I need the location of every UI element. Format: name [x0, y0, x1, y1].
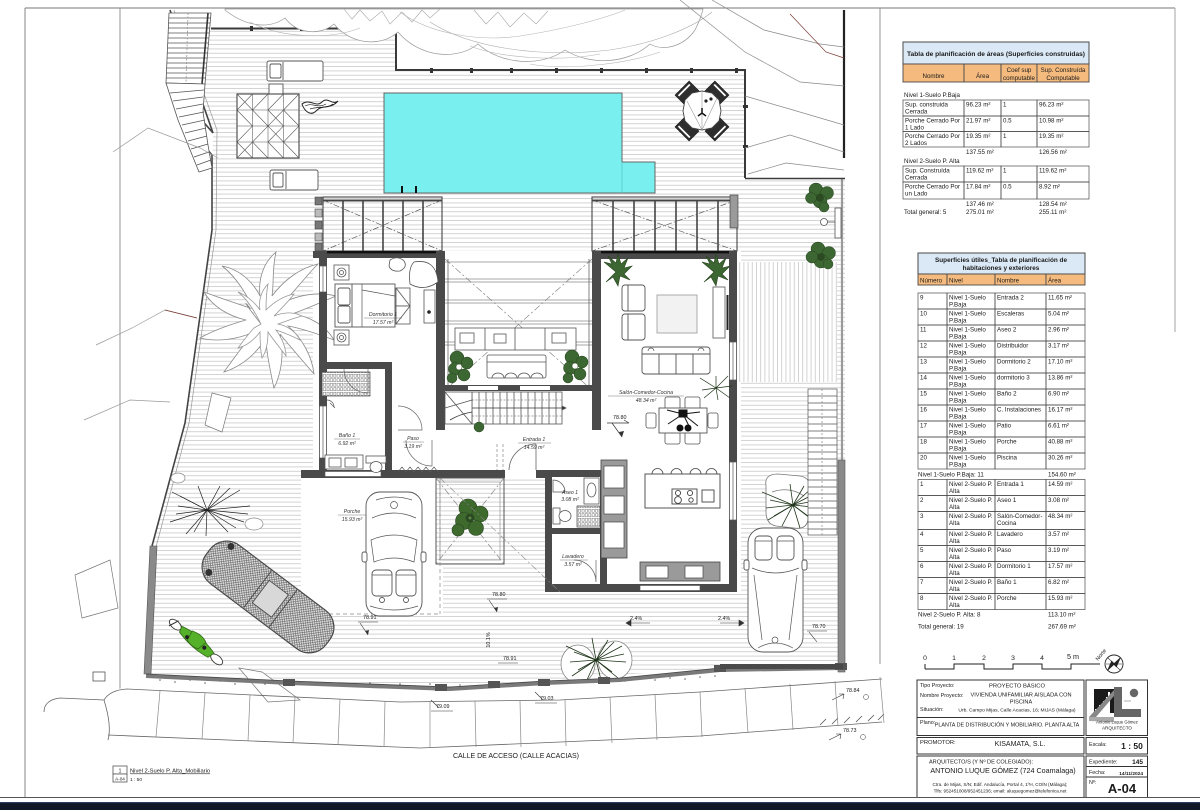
svg-text:P.Baja: P.Baja — [949, 382, 967, 389]
svg-text:3: 3 — [1011, 655, 1015, 662]
svg-text:Nivel 2-Suelo P.: Nivel 2-Suelo P. — [949, 513, 993, 520]
svg-text:3.08 m²: 3.08 m² — [1048, 497, 1069, 504]
svg-text:Escaleras: Escaleras — [997, 311, 1024, 318]
svg-text:48.34 m²: 48.34 m² — [1048, 513, 1072, 520]
svg-text:0.5: 0.5 — [1003, 184, 1012, 191]
svg-text:Nivel 1-Suelo: Nivel 1-Suelo — [949, 439, 986, 446]
svg-text:Patio: Patio — [997, 423, 1012, 430]
svg-text:Sup. Construída: Sup. Construída — [1041, 67, 1086, 74]
svg-text:un Lado: un Lado — [905, 191, 928, 198]
svg-text:Ctra. de Mijas, S/N; Edif. And: Ctra. de Mijas, S/N; Edif. Andalucía, Po… — [933, 781, 1068, 787]
svg-text:78.80: 78.80 — [492, 592, 506, 598]
svg-text:Paso: Paso — [997, 547, 1012, 554]
svg-text:1 : 50: 1 : 50 — [130, 777, 142, 783]
svg-text:Superficies útiles_Tabla de pl: Superficies útiles_Tabla de planificació… — [935, 257, 1067, 264]
svg-text:Total general: 5: Total general: 5 — [904, 209, 947, 216]
svg-text:154.60 m²: 154.60 m² — [1048, 472, 1076, 479]
svg-text:5 m: 5 m — [1067, 652, 1079, 661]
svg-text:Porche Cerrado Por: Porche Cerrado Por — [905, 133, 960, 140]
svg-text:Expediente:: Expediente: — [1089, 760, 1117, 766]
svg-text:2.4%: 2.4% — [630, 616, 642, 622]
svg-text:Distribuidor: Distribuidor — [997, 343, 1028, 350]
svg-text:1: 1 — [1003, 168, 1007, 175]
svg-text:126.56 m²: 126.56 m² — [1039, 149, 1067, 156]
svg-text:Nivel 1-Suelo: Nivel 1-Suelo — [949, 375, 986, 382]
svg-text:6.61 m²: 6.61 m² — [1048, 423, 1069, 430]
svg-text:1: 1 — [1003, 133, 1007, 140]
svg-text:ARQUITECTO: ARQUITECTO — [1102, 726, 1132, 731]
svg-text:Total general: 19: Total general: 19 — [918, 624, 964, 631]
svg-text:Alta: Alta — [949, 504, 960, 511]
svg-text:18: 18 — [920, 439, 927, 446]
svg-text:Dormitorio 1: Dormitorio 1 — [369, 312, 397, 318]
svg-text:15: 15 — [920, 391, 927, 398]
svg-text:Baño 2: Baño 2 — [997, 391, 1017, 398]
svg-text:3.08 m²: 3.08 m² — [561, 497, 579, 503]
svg-text:Porche: Porche — [997, 439, 1017, 446]
svg-text:19.35 m²: 19.35 m² — [1039, 133, 1063, 140]
svg-text:Alta: Alta — [949, 602, 960, 609]
svg-text:Número: Número — [920, 278, 943, 285]
svg-text:255.11 m²: 255.11 m² — [1039, 209, 1066, 216]
svg-text:119.62 m²: 119.62 m² — [966, 168, 993, 175]
svg-text:CALLE DE ACCESO (CALLE ACACIAS: CALLE DE ACCESO (CALLE ACACIAS) — [453, 753, 579, 760]
svg-text:Nivel 2-Suelo P.: Nivel 2-Suelo P. — [949, 547, 993, 554]
svg-text:dormitorio 3: dormitorio 3 — [997, 375, 1030, 382]
svg-text:PROMOTOR:: PROMOTOR: — [920, 740, 956, 746]
svg-text:11: 11 — [920, 327, 927, 334]
svg-text:20: 20 — [920, 455, 927, 462]
svg-text:Entrada 2: Entrada 2 — [997, 295, 1024, 302]
svg-text:Piscina: Piscina — [997, 455, 1018, 462]
svg-text:8: 8 — [920, 595, 924, 602]
svg-text:128.54 m²: 128.54 m² — [1039, 201, 1067, 208]
svg-text:KISAMATA, S.L.: KISAMATA, S.L. — [995, 741, 1046, 748]
svg-text:10: 10 — [920, 311, 927, 318]
svg-text:computable: computable — [1003, 75, 1036, 82]
svg-text:A-04: A-04 — [1108, 781, 1137, 796]
svg-text:Porche: Porche — [997, 595, 1017, 602]
svg-text:0: 0 — [923, 655, 927, 662]
svg-text:Aseo 2: Aseo 2 — [997, 327, 1017, 334]
svg-text:Nivel 2-Suelo P. Alta: 8: Nivel 2-Suelo P. Alta: 8 — [918, 612, 981, 619]
svg-text:Porche Cerrado Por: Porche Cerrado Por — [905, 184, 960, 191]
svg-text:Nivel 2-Suelo P.: Nivel 2-Suelo P. — [949, 481, 993, 488]
svg-text:267.69 m²: 267.69 m² — [1048, 624, 1076, 631]
svg-text:Nivel 1-Suelo P.Baja: Nivel 1-Suelo P.Baja — [904, 92, 961, 99]
svg-text:Tabla de planificación de área: Tabla de planificación de áreas (Superfi… — [907, 51, 1085, 58]
svg-text:6.90 m²: 6.90 m² — [1048, 391, 1069, 398]
svg-text:P.Baja: P.Baja — [949, 446, 967, 453]
svg-text:Área: Área — [1048, 278, 1062, 285]
svg-text:113.10 m²: 113.10 m² — [1048, 612, 1075, 619]
svg-text:Situación:: Situación: — [920, 707, 944, 713]
svg-text:17.57 m²: 17.57 m² — [373, 320, 394, 326]
svg-text:P.Baja: P.Baja — [949, 302, 967, 309]
svg-text:Nombre: Nombre — [922, 73, 945, 80]
svg-text:Nivel 2-Suelo P. Alta: Nivel 2-Suelo P. Alta — [904, 158, 960, 165]
svg-text:Salón-Comedor-: Salón-Comedor- — [997, 513, 1042, 520]
svg-text:Nivel 2-Suelo P. Alta_Mobiliar: Nivel 2-Suelo P. Alta_Mobiliario — [130, 769, 210, 775]
svg-text:Entrada 1: Entrada 1 — [997, 481, 1024, 488]
svg-text:Cocina: Cocina — [997, 520, 1017, 527]
svg-text:8.92 m²: 8.92 m² — [1039, 184, 1060, 191]
svg-text:4: 4 — [1040, 655, 1044, 662]
svg-text:Alta: Alta — [949, 488, 960, 495]
svg-text:Nivel 1-Suelo: Nivel 1-Suelo — [949, 423, 986, 430]
svg-text:119.62 m²: 119.62 m² — [1039, 168, 1066, 175]
svg-text:2: 2 — [920, 497, 924, 504]
svg-text:Nivel 1-Suelo: Nivel 1-Suelo — [949, 391, 986, 398]
svg-text:3.57 m²: 3.57 m² — [564, 562, 582, 568]
svg-text:P.Baja: P.Baja — [949, 462, 967, 469]
svg-text:1: 1 — [1003, 102, 1007, 109]
svg-text:15.93 m²: 15.93 m² — [342, 517, 363, 523]
svg-text:Plano:: Plano: — [920, 720, 935, 726]
svg-text:3.19 m²: 3.19 m² — [1048, 547, 1069, 554]
svg-text:Área: Área — [976, 73, 990, 80]
svg-text:Alta: Alta — [949, 554, 960, 561]
svg-text:13: 13 — [920, 359, 927, 366]
svg-text:10.98 m²: 10.98 m² — [1039, 118, 1063, 125]
svg-text:Nivel 2-Suelo P.: Nivel 2-Suelo P. — [949, 531, 993, 538]
svg-text:48.34 m²: 48.34 m² — [636, 398, 657, 404]
svg-text:Nivel 2-Suelo P.: Nivel 2-Suelo P. — [949, 563, 993, 570]
svg-text:3: 3 — [920, 513, 924, 520]
svg-text:17.57 m²: 17.57 m² — [1048, 563, 1072, 570]
svg-text:13.86 m²: 13.86 m² — [1048, 375, 1072, 382]
svg-text:Cerrada: Cerrada — [905, 175, 928, 182]
svg-text:14.59 m²: 14.59 m² — [1048, 481, 1072, 488]
svg-text:P.Baja: P.Baja — [949, 430, 967, 437]
svg-text:Nivel 1-Suelo: Nivel 1-Suelo — [949, 455, 986, 462]
svg-text:P.Baja: P.Baja — [949, 318, 967, 325]
svg-text:Escala:: Escala: — [1089, 742, 1107, 748]
svg-text:9: 9 — [920, 295, 924, 302]
svg-text:Nº:: Nº: — [1089, 780, 1096, 786]
svg-text:Alta: Alta — [949, 538, 960, 545]
svg-text:Coef sup: Coef sup — [1007, 67, 1032, 74]
svg-text:Dormitorio 2: Dormitorio 2 — [997, 359, 1031, 366]
svg-text:137.55 m²: 137.55 m² — [966, 149, 994, 156]
svg-text:ARQUITECTO/S (Y Nº DE COLEGIAD: ARQUITECTO/S (Y Nº DE COLEGIADO): — [929, 759, 1034, 766]
svg-text:Nivel 1-Suelo: Nivel 1-Suelo — [949, 359, 986, 366]
svg-text:Entrada 1: Entrada 1 — [523, 437, 546, 443]
svg-text:78.84: 78.84 — [846, 688, 860, 694]
svg-text:17.10 m²: 17.10 m² — [1048, 359, 1072, 366]
svg-text:Paso: Paso — [407, 436, 419, 442]
svg-text:96.23 m²: 96.23 m² — [1039, 102, 1063, 109]
svg-text:14: 14 — [920, 375, 927, 382]
svg-text:78.70: 78.70 — [812, 624, 826, 630]
svg-text:17.84 m²: 17.84 m² — [966, 184, 990, 191]
svg-text:P.Baja: P.Baja — [949, 366, 967, 373]
svg-text:78.91: 78.91 — [503, 656, 517, 662]
svg-text:Nivel: Nivel — [949, 278, 963, 285]
svg-text:1: 1 — [952, 655, 956, 662]
svg-text:1 Lado: 1 Lado — [905, 125, 924, 132]
svg-text:6.82 m²: 6.82 m² — [1048, 579, 1069, 586]
svg-text:A-04: A-04 — [115, 777, 125, 782]
svg-text:Nivel 1-Suelo: Nivel 1-Suelo — [949, 343, 986, 350]
svg-text:Baño 1: Baño 1 — [997, 579, 1017, 586]
svg-text:1 : 50: 1 : 50 — [1121, 741, 1143, 751]
svg-text:Computable: Computable — [1046, 75, 1080, 82]
svg-text:VIVIENDA UNIFAMILIAR AISLADA C: VIVIENDA UNIFAMILIAR AISLADA CON — [970, 693, 1071, 699]
svg-text:16: 16 — [920, 407, 927, 414]
svg-text:4: 4 — [920, 531, 924, 538]
svg-text:2: 2 — [982, 655, 986, 662]
svg-text:15.93 m²: 15.93 m² — [1048, 595, 1072, 602]
svg-text:11.65 m²: 11.65 m² — [1048, 295, 1072, 302]
svg-text:Lavadero: Lavadero — [562, 554, 584, 560]
svg-text:3.57 m²: 3.57 m² — [1048, 531, 1069, 538]
svg-text:C. Instalaciones: C. Instalaciones — [997, 407, 1041, 414]
svg-text:5: 5 — [920, 547, 924, 554]
svg-text:Alta: Alta — [949, 586, 960, 593]
svg-text:Urb. Campo Mijas, Calle Acacia: Urb. Campo Mijas, Calle Acacias, 16; MIJ… — [958, 708, 1076, 714]
svg-text:78.91: 78.91 — [363, 615, 377, 621]
svg-text:3.19 m²: 3.19 m² — [404, 444, 422, 450]
svg-text:Nivel 2-Suelo P.: Nivel 2-Suelo P. — [949, 595, 993, 602]
svg-text:P.Baja: P.Baja — [949, 398, 967, 405]
svg-text:14.59 m²: 14.59 m² — [524, 445, 545, 451]
svg-text:0.5: 0.5 — [1003, 118, 1012, 125]
svg-text:Sup. Construída: Sup. Construída — [905, 168, 950, 175]
svg-text:Aseo 1: Aseo 1 — [561, 490, 578, 496]
svg-text:5.04 m²: 5.04 m² — [1048, 311, 1069, 318]
svg-text:PISCINA: PISCINA — [1010, 700, 1033, 706]
svg-text:14/11/2024: 14/11/2024 — [1119, 771, 1143, 777]
svg-text:Nivel 1-Suelo: Nivel 1-Suelo — [949, 327, 986, 334]
svg-text:21.97 m²: 21.97 m² — [966, 118, 990, 125]
svg-text:Nivel 1-Suelo: Nivel 1-Suelo — [949, 311, 986, 318]
svg-text:12: 12 — [920, 343, 927, 350]
svg-text:Nombre: Nombre — [997, 278, 1020, 285]
svg-text:17: 17 — [920, 423, 927, 430]
svg-text:2.96 m²: 2.96 m² — [1048, 327, 1069, 334]
svg-text:Nivel 2-Suelo P.: Nivel 2-Suelo P. — [949, 579, 993, 586]
svg-text:Nivel 2-Suelo P.: Nivel 2-Suelo P. — [949, 497, 993, 504]
svg-text:1: 1 — [920, 481, 924, 488]
svg-text:Alta: Alta — [949, 570, 960, 577]
svg-text:2 Lados: 2 Lados — [905, 140, 927, 147]
svg-text:19.35 m²: 19.35 m² — [966, 133, 990, 140]
svg-text:PLANTA DE DISTRIBUCIÓN Y MOBIL: PLANTA DE DISTRIBUCIÓN Y MOBILIARIO. PLA… — [935, 722, 1080, 729]
svg-text:Fecha:: Fecha: — [1089, 770, 1105, 776]
svg-text:78.73: 78.73 — [843, 728, 857, 734]
svg-text:6.92 m²: 6.92 m² — [338, 441, 356, 447]
svg-text:275.01 m²: 275.01 m² — [966, 209, 994, 216]
svg-text:P.Baja: P.Baja — [949, 334, 967, 341]
svg-text:10.1%: 10.1% — [486, 632, 492, 647]
svg-text:Nivel 1-Suelo: Nivel 1-Suelo — [949, 295, 986, 302]
svg-text:Antonio Luque Gómez: Antonio Luque Gómez — [1096, 720, 1138, 725]
svg-text:Nivel 1-Suelo P.Baja: 11: Nivel 1-Suelo P.Baja: 11 — [918, 472, 984, 479]
svg-text:96.23 m²: 96.23 m² — [966, 102, 990, 109]
svg-text:Cerrada: Cerrada — [905, 109, 928, 116]
svg-text:Porche Cerrado Por: Porche Cerrado Por — [905, 118, 960, 125]
svg-text:137.46 m²: 137.46 m² — [966, 201, 994, 208]
svg-text:2.4%: 2.4% — [718, 616, 730, 622]
svg-text:Porche: Porche — [344, 509, 361, 515]
svg-text:P.Baja: P.Baja — [949, 350, 967, 357]
svg-text:Tlfs: 952451008/952451236; ema: Tlfs: 952451008/952451236; email: aluque… — [934, 789, 1068, 794]
svg-text:Nivel 1-Suelo: Nivel 1-Suelo — [949, 407, 986, 414]
svg-text:6: 6 — [920, 563, 924, 570]
svg-text:7: 7 — [920, 579, 924, 586]
svg-text:Aseo 1: Aseo 1 — [997, 497, 1017, 504]
svg-text:3.17 m²: 3.17 m² — [1048, 343, 1069, 350]
svg-text:1: 1 — [119, 769, 122, 775]
svg-text:Tipo Proyecto:: Tipo Proyecto: — [920, 683, 955, 689]
svg-text:Dormitorio 1: Dormitorio 1 — [997, 563, 1031, 570]
svg-text:P.Baja: P.Baja — [949, 414, 967, 421]
svg-text:145: 145 — [1132, 759, 1143, 766]
svg-text:Nombre Proyecto:: Nombre Proyecto: — [920, 693, 963, 699]
svg-text:habitaciones y exteriores: habitaciones y exteriores — [963, 265, 1040, 272]
svg-text:Salón-Comedor-Cocina: Salón-Comedor-Cocina — [619, 390, 673, 396]
svg-text:Alta: Alta — [949, 520, 960, 527]
svg-text:Baño 1: Baño 1 — [339, 433, 356, 439]
svg-text:PROYECTO BÁSICO: PROYECTO BÁSICO — [989, 683, 1045, 690]
svg-text:Sup. construida: Sup. construida — [905, 102, 949, 109]
svg-text:16.17 m²: 16.17 m² — [1048, 407, 1072, 414]
svg-text:30.26 m²: 30.26 m² — [1048, 455, 1072, 462]
svg-text:ANTONIO LUQUE GÓMEZ (724 Coama: ANTONIO LUQUE GÓMEZ (724 Coamalaga) — [930, 766, 1075, 775]
svg-text:Lavadero: Lavadero — [997, 531, 1023, 538]
svg-text:40.88 m²: 40.88 m² — [1048, 439, 1072, 446]
